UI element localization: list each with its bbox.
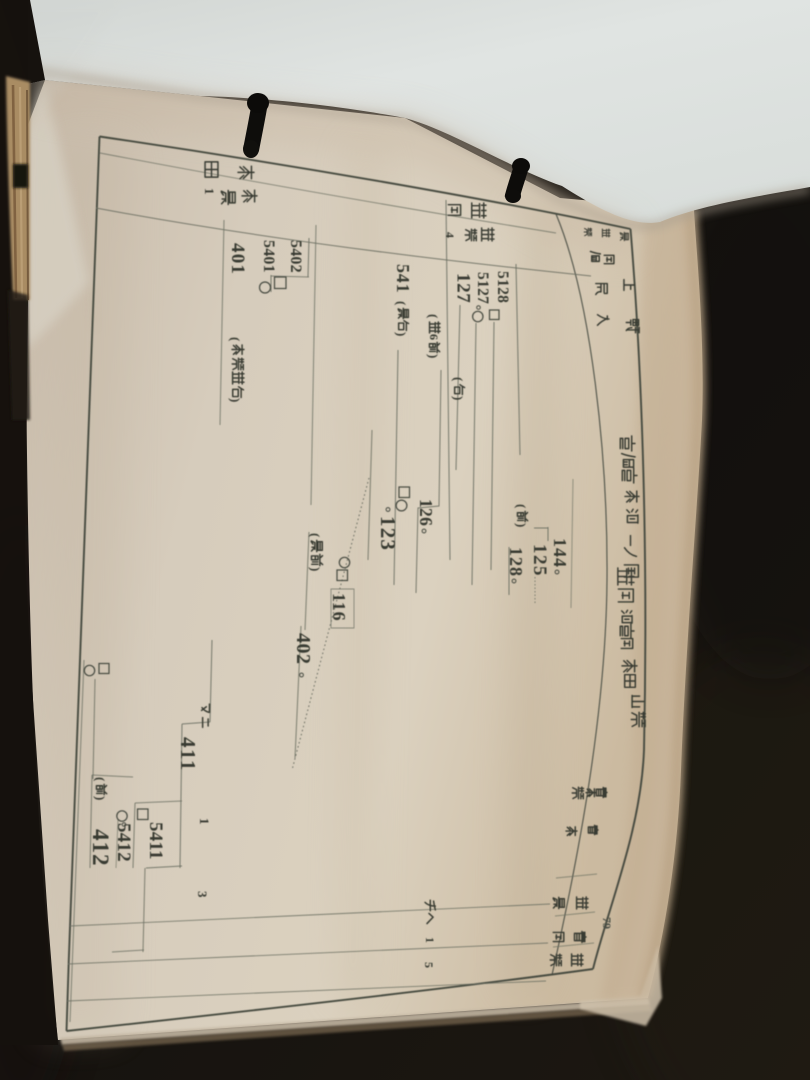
svg-text:(: ( [451,377,466,381]
svg-text:5401: 5401 [260,240,277,273]
svg-text:5: 5 [422,962,436,968]
svg-text:127: 127 [453,273,474,303]
svg-text:126: 126 [416,499,436,526]
svg-text:1: 1 [423,937,437,943]
svg-text:144: 144 [550,538,570,568]
svg-text:125: 125 [529,544,550,577]
svg-text:116: 116 [329,593,349,621]
svg-text:): ) [514,523,529,527]
svg-text:5411: 5411 [145,822,166,860]
svg-text:(: ( [514,504,529,508]
svg-text:): ) [308,567,323,571]
svg-text:402: 402 [292,633,314,665]
svg-text:): ) [394,332,409,336]
svg-text:1: 1 [197,818,212,825]
svg-text:401: 401 [227,243,248,275]
svg-text:5127: 5127 [474,272,491,304]
svg-text:5128: 5128 [494,271,511,303]
svg-text:5412: 5412 [113,823,134,862]
svg-text:): ) [228,398,243,402]
svg-text:1: 1 [202,188,217,195]
svg-text:5402: 5402 [287,240,304,273]
svg-text:(: ( [394,301,409,305]
svg-text:): ) [426,354,441,358]
svg-text:123: 123 [376,516,400,551]
svg-text:412: 412 [88,829,113,867]
svg-text:4: 4 [443,232,457,238]
svg-text:(: ( [426,314,441,318]
svg-text:128: 128 [506,547,526,577]
svg-text:79: 79 [600,917,614,929]
svg-text:(: ( [228,337,243,341]
svg-text:3: 3 [195,891,210,898]
svg-text:): ) [93,796,108,800]
svg-text:(: ( [93,777,108,781]
svg-text:): ) [451,396,466,400]
svg-text:411: 411 [176,737,200,772]
svg-text:6: 6 [427,334,441,340]
svg-text:541: 541 [393,264,413,293]
svg-text:(: ( [308,533,323,537]
